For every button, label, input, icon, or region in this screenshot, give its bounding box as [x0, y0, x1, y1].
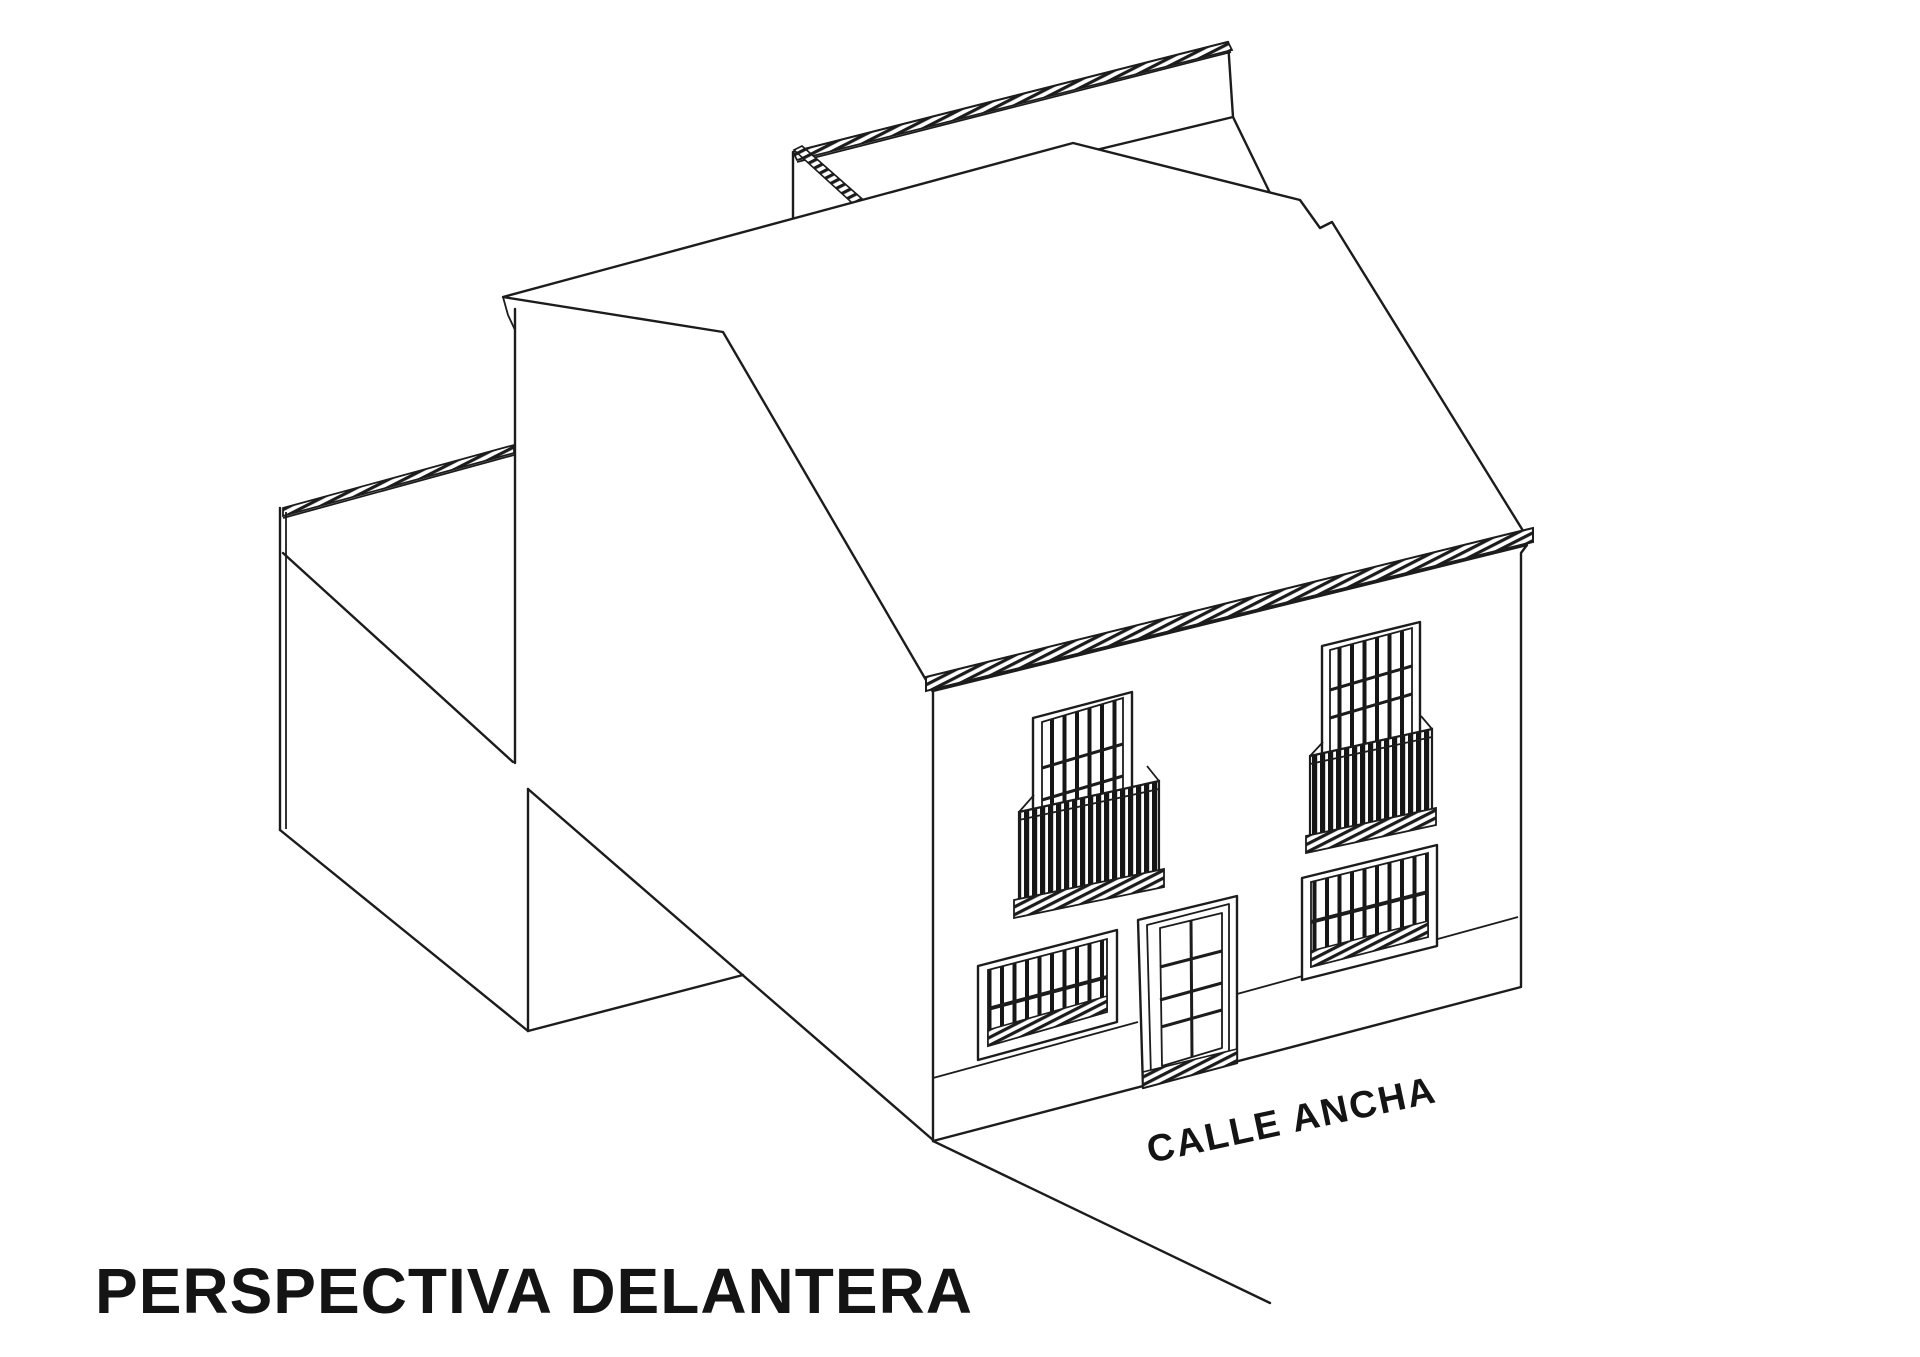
- rear-wall-right-return-edge: [1233, 117, 1270, 193]
- door-mullion: [1191, 921, 1192, 1057]
- front-door: [1138, 896, 1237, 1088]
- courtyard-ground-line-side: [528, 975, 743, 1031]
- street-name-label: CALLE ANCHA: [1143, 1069, 1440, 1171]
- balcony-window-upper-right: [1306, 622, 1436, 853]
- perspective-drawing-canvas: CALLE ANCHA PERSPECTIVA DELANTERA: [0, 0, 1920, 1357]
- courtyard-walls: [280, 445, 933, 1140]
- main-house: [503, 143, 1533, 1303]
- courtyard-coping-underline: [283, 455, 514, 518]
- courtyard-wall-coping-hatch: [283, 445, 514, 516]
- courtyard-inner-wall-top: [283, 553, 513, 762]
- street-ground-line: [933, 1141, 1270, 1303]
- ground-line-house-base: [528, 789, 933, 1140]
- courtyard-ground-line-front: [280, 830, 528, 1031]
- drawing-title: PERSPECTIVA DELANTERA: [95, 1255, 973, 1327]
- roof-left-corner-tick: [503, 297, 515, 330]
- architectural-drawing-page: CALLE ANCHA PERSPECTIVA DELANTERA: [0, 0, 1920, 1357]
